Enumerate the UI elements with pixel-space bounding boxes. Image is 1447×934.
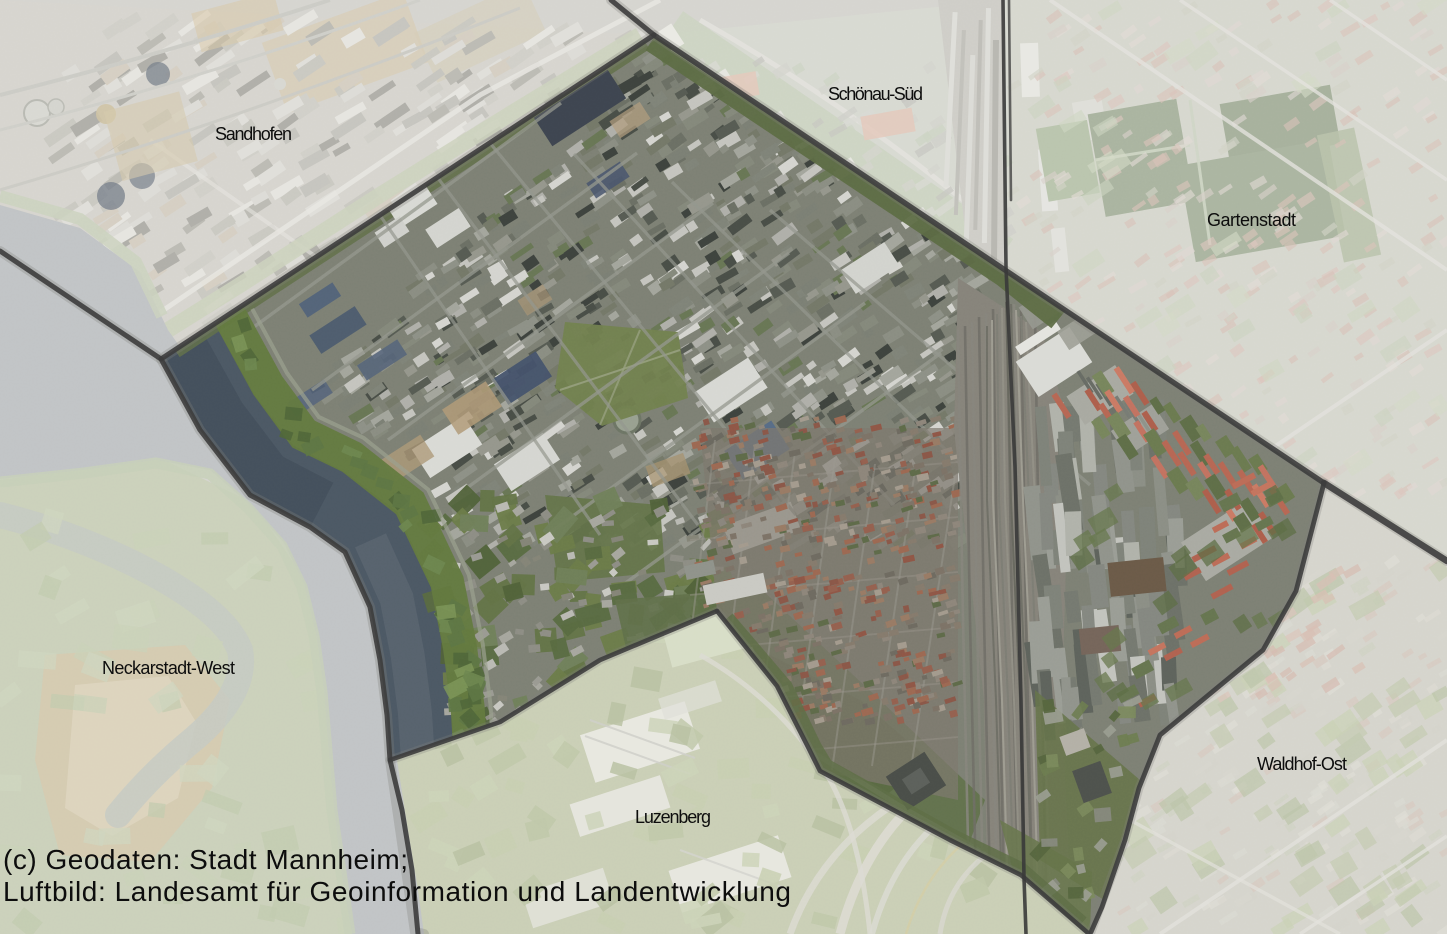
svg-text:Luftbild: Landesamt für Geoinf: Luftbild: Landesamt für Geoinformation u…: [3, 876, 791, 907]
svg-text:Gartenstadt: Gartenstadt: [1207, 210, 1296, 230]
svg-text:Waldhof-Ost: Waldhof-Ost: [1257, 754, 1347, 774]
svg-text:(c) Geodaten: Stadt Mannheim;: (c) Geodaten: Stadt Mannheim;: [3, 844, 408, 875]
svg-text:Luzenberg: Luzenberg: [635, 807, 711, 827]
svg-text:Schönau-Süd: Schönau-Süd: [828, 84, 923, 104]
svg-text:Neckarstadt-West: Neckarstadt-West: [102, 658, 235, 678]
svg-text:Sandhofen: Sandhofen: [215, 124, 292, 144]
